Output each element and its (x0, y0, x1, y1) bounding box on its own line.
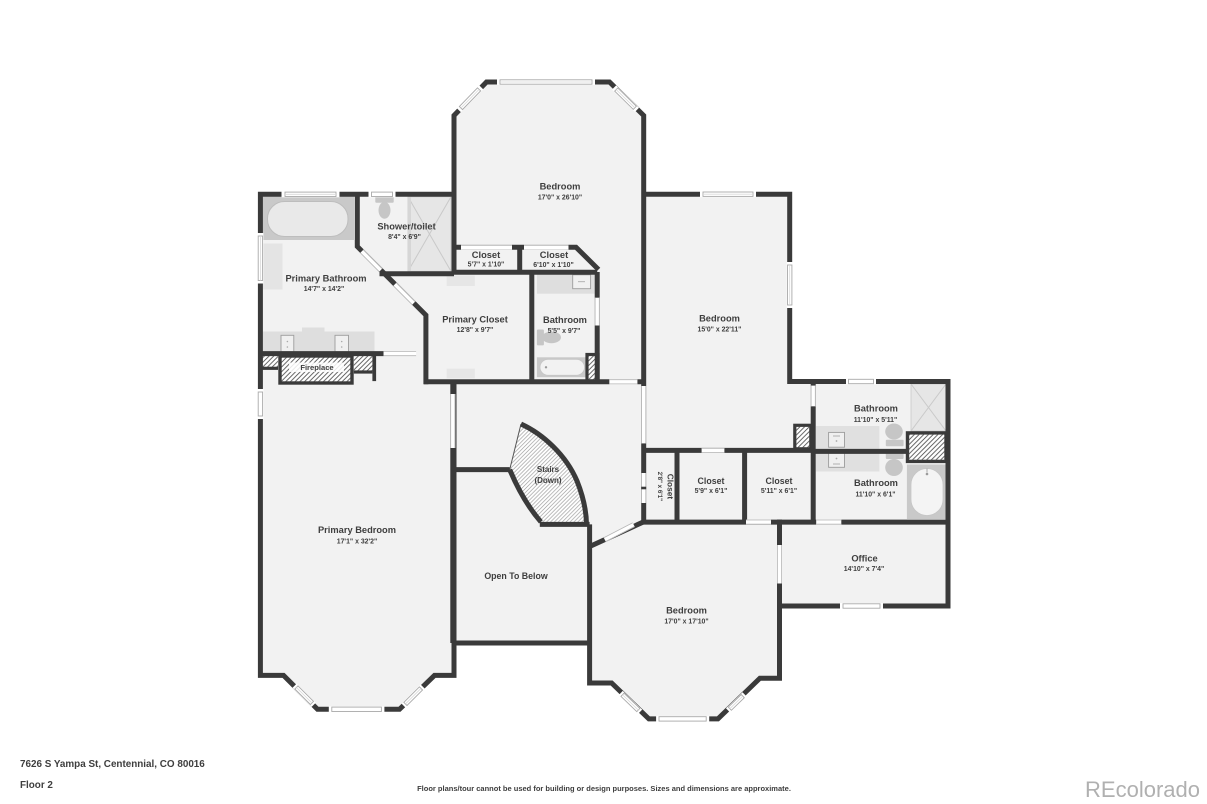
svg-text:2'8" x 6'1": 2'8" x 6'1" (656, 472, 663, 502)
svg-text:Stairs: Stairs (537, 465, 560, 474)
svg-text:(Down): (Down) (534, 476, 561, 485)
svg-text:Closet: Closet (766, 476, 793, 486)
svg-text:5'9" x 6'1": 5'9" x 6'1" (695, 488, 728, 495)
svg-text:17'1" x 32'2": 17'1" x 32'2" (337, 539, 377, 546)
svg-text:5'5" x 9'7": 5'5" x 9'7" (548, 328, 581, 335)
svg-text:11'10" x 5'11": 11'10" x 5'11" (854, 417, 898, 424)
svg-text:5'7" x 1'10": 5'7" x 1'10" (468, 262, 505, 269)
svg-text:Closet: Closet (472, 250, 500, 260)
svg-text:Primary Bathroom: Primary Bathroom (285, 274, 366, 284)
svg-text:6'10" x 1'10": 6'10" x 1'10" (533, 262, 573, 269)
svg-text:Fireplace: Fireplace (300, 363, 333, 372)
svg-text:11'10" x 6'1": 11'10" x 6'1" (855, 492, 895, 499)
svg-text:Bathroom: Bathroom (854, 478, 898, 488)
svg-text:Primary Closet: Primary Closet (442, 315, 508, 325)
svg-text:REcolorado: REcolorado (1085, 777, 1200, 802)
svg-text:14'10" x 7'4": 14'10" x 7'4" (844, 566, 884, 573)
svg-text:7626 S Yampa St, Centennial, C: 7626 S Yampa St, Centennial, CO 80016 (20, 759, 205, 770)
svg-text:17'0" x 26'10": 17'0" x 26'10" (538, 195, 582, 202)
svg-text:8'4" x 6'9": 8'4" x 6'9" (388, 234, 421, 241)
svg-text:Primary Bedroom: Primary Bedroom (318, 525, 396, 535)
svg-text:Closet: Closet (540, 250, 568, 260)
svg-text:Shower/toilet: Shower/toilet (377, 222, 435, 232)
svg-text:17'0" x 17'10": 17'0" x 17'10" (664, 619, 708, 626)
svg-text:Office: Office (851, 554, 877, 564)
svg-text:15'0" x 22'11": 15'0" x 22'11" (698, 327, 742, 334)
svg-text:14'7" x 14'2": 14'7" x 14'2" (304, 286, 344, 293)
svg-text:Bathroom: Bathroom (543, 315, 587, 325)
svg-text:Floor plans/tour cannot be use: Floor plans/tour cannot be used for buil… (417, 784, 791, 793)
svg-text:Bedroom: Bedroom (540, 182, 581, 192)
svg-text:Open To Below: Open To Below (484, 571, 548, 581)
svg-text:5'11" x 6'1": 5'11" x 6'1" (761, 488, 797, 495)
svg-text:Closet: Closet (698, 476, 725, 486)
svg-text:Floor 2: Floor 2 (20, 780, 53, 791)
svg-text:Bedroom: Bedroom (699, 314, 740, 324)
svg-text:Bathroom: Bathroom (854, 404, 898, 414)
svg-text:Closet: Closet (666, 474, 676, 500)
svg-text:Bedroom: Bedroom (666, 606, 707, 616)
svg-text:12'8" x 9'7": 12'8" x 9'7" (457, 327, 494, 334)
